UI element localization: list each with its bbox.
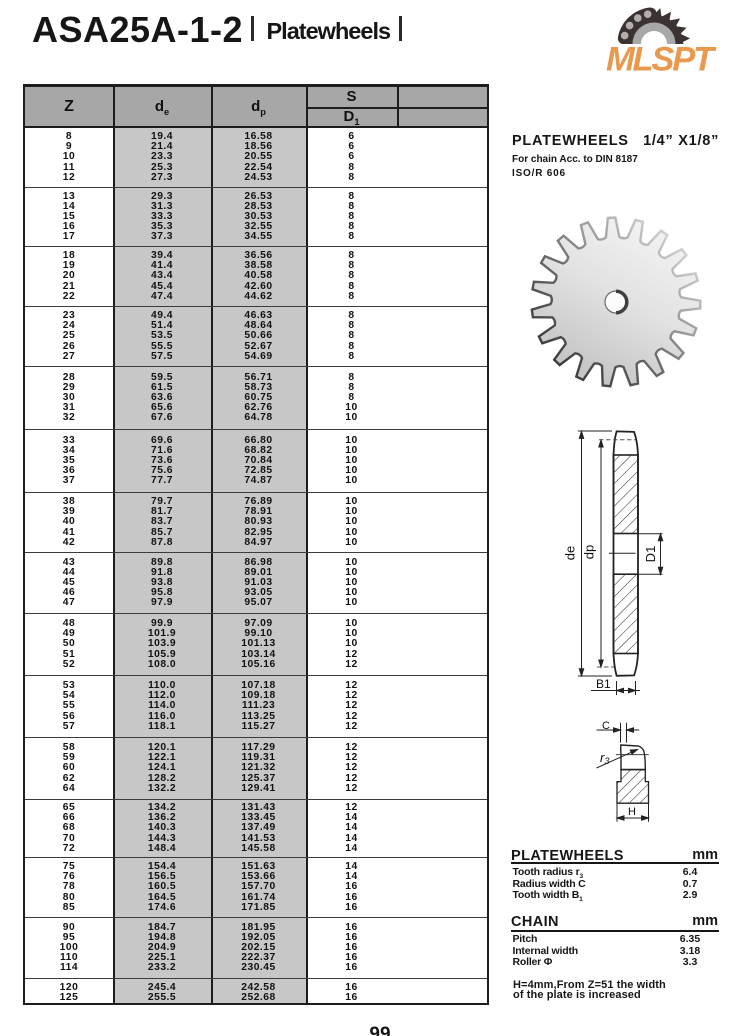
svg-text:MLSPT: MLSPT	[606, 41, 717, 77]
svg-text:D1: D1	[643, 546, 658, 563]
svg-text:H: H	[628, 806, 636, 818]
svg-text:B1: B1	[596, 677, 611, 691]
svg-text:dp: dp	[582, 545, 597, 559]
svg-text:r3: r3	[600, 750, 609, 766]
svg-text:C: C	[602, 720, 610, 732]
svg-text:de: de	[563, 546, 578, 560]
